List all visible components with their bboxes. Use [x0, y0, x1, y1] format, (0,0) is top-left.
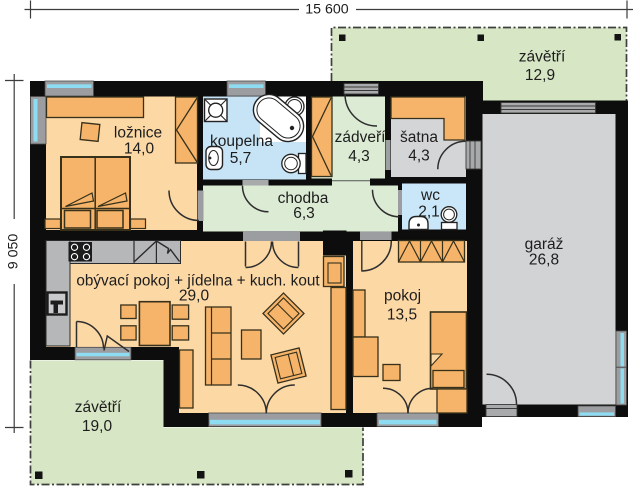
svg-text:14,0: 14,0: [124, 141, 155, 158]
svg-text:6,3: 6,3: [293, 205, 315, 222]
svg-text:19,0: 19,0: [82, 418, 113, 435]
svg-text:ložnice: ložnice: [114, 125, 162, 142]
svg-text:šatna: šatna: [400, 129, 438, 146]
svg-text:wc: wc: [420, 187, 440, 204]
svg-text:pokoj: pokoj: [384, 288, 421, 305]
svg-text:garáž: garáž: [525, 236, 564, 253]
svg-text:15 600: 15 600: [305, 2, 349, 18]
svg-text:5,7: 5,7: [230, 150, 252, 167]
svg-text:koupelna: koupelna: [210, 133, 273, 150]
svg-text:4,3: 4,3: [348, 148, 370, 165]
svg-text:9 050: 9 050: [6, 234, 22, 270]
svg-text:26,8: 26,8: [529, 252, 559, 269]
svg-text:4,3: 4,3: [408, 148, 430, 165]
svg-text:13,5: 13,5: [387, 307, 417, 324]
svg-text:zádveří: zádveří: [335, 129, 387, 146]
svg-text:12,9: 12,9: [525, 67, 555, 84]
svg-text:závětří: závětří: [519, 49, 566, 66]
svg-text:29,0: 29,0: [179, 288, 210, 305]
svg-text:2,1: 2,1: [418, 204, 440, 221]
svg-text:závětří: závětří: [75, 399, 122, 416]
